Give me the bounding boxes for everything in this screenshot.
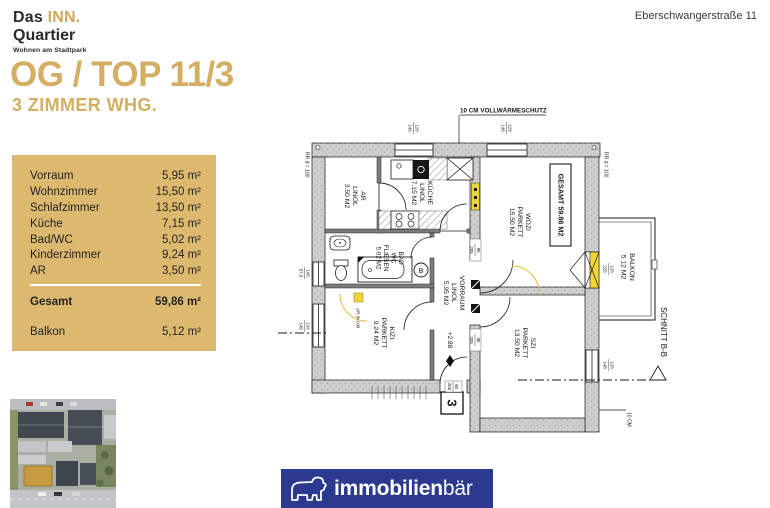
svg-text:LINOL: LINOL <box>351 186 358 206</box>
gesamt-box-label: GESAMT 59.86 M2 <box>550 164 571 246</box>
rr-marker-left <box>316 146 320 150</box>
svg-text:145: 145 <box>306 269 311 277</box>
svg-text:AR: AR <box>359 191 366 201</box>
room-label-kizi: KIZI PARKETT 9.24 M2 <box>372 318 395 349</box>
room-label-vorraum: VORRAUM LINOL 5.95 M2 <box>442 276 465 311</box>
table-divider <box>30 284 201 286</box>
room-area: 5,95 m² <box>162 170 201 182</box>
room-area: 7,15 m² <box>162 218 201 230</box>
logo-line1: Das INN. <box>13 10 87 26</box>
dim-door-upper: 90 205 <box>469 239 481 261</box>
balcony-door <box>570 252 599 288</box>
svg-text:9.24 M2: 9.24 M2 <box>372 321 379 346</box>
shaft-strip <box>472 183 480 210</box>
room-label-balkon: BALKON 5.12 M2 <box>620 253 636 281</box>
logo-tagline: Wohnen am Stadtpark <box>13 48 87 55</box>
page-title: OG / TOP 11/3 <box>10 55 234 95</box>
room-label-wozi: WOZI PARKETT 15.50 M2 <box>508 207 531 238</box>
toilet <box>334 260 348 281</box>
svg-text:205: 205 <box>447 383 452 391</box>
table-row: Schlafzimmer13,50 m² <box>30 200 201 216</box>
room-area: 3,50 m² <box>162 265 201 277</box>
svg-text:5.95 M2: 5.95 M2 <box>442 281 449 306</box>
svg-text:7.15 M2: 7.15 M2 <box>410 181 417 206</box>
svg-text:148: 148 <box>603 361 608 369</box>
dim-balcony-door: 128 225 <box>603 263 615 275</box>
room-label-kueche: KÜCHE LINOL 7.15 M2 <box>410 181 434 206</box>
svg-text:3.50 M2: 3.50 M2 <box>343 184 350 209</box>
rr-label-right: RR d = 100 <box>603 152 609 178</box>
svg-text:PARKETT: PARKETT <box>380 318 387 349</box>
room-label: AR <box>30 265 46 277</box>
agency-logo-text: immobilienbär <box>334 477 473 501</box>
dim-entrance-door: 80 205 <box>445 381 462 392</box>
svg-text:13.50 M2: 13.50 M2 <box>513 329 520 358</box>
dim-top-window-left: 128 148 <box>408 122 420 134</box>
svg-text:GESAMT 59.86 M2: GESAMT 59.86 M2 <box>557 174 566 237</box>
svg-text:145: 145 <box>299 322 304 330</box>
svg-text:90: 90 <box>476 338 481 343</box>
floorplan-datasheet-page: { "colors":{"gold":"#d4ae63","gold_box":… <box>0 0 770 508</box>
dim-door-lower: 90 205 <box>469 329 481 351</box>
aerial-photo <box>10 399 116 508</box>
svg-text:128: 128 <box>610 361 615 369</box>
logo-inn: INN. <box>48 9 81 26</box>
total-label: Gesamt <box>30 296 72 308</box>
svg-text:RR d = 100: RR d = 100 <box>603 152 609 178</box>
svg-text:5.02 M2: 5.02 M2 <box>375 246 382 270</box>
dim-wall-left-upper: 145 57,5 <box>299 267 311 279</box>
room-label: Bad/WC <box>30 234 73 246</box>
svg-text:205: 205 <box>469 336 474 344</box>
room-label: Wohnzimmer <box>30 186 98 198</box>
room-label-szi: SZI PARKETT 13.50 M2 <box>513 328 536 359</box>
floor-plan-drawing: B AR d=100 <box>278 100 678 435</box>
svg-text:KÜCHE: KÜCHE <box>426 181 434 205</box>
dim-szi-window: 128 148 <box>603 359 615 371</box>
kitchen-counter-hatch <box>428 158 447 180</box>
logo-das: Das <box>13 9 48 26</box>
svg-text:90: 90 <box>476 248 481 253</box>
room-label: Küche <box>30 218 63 230</box>
table-balkon-row: Balkon5,12 m² <box>30 324 201 340</box>
svg-text:WOZI: WOZI <box>524 213 531 231</box>
svg-text:KIZI: KIZI <box>388 327 395 340</box>
kitchen-sink-unit <box>391 160 429 179</box>
brand-bold: immobilien <box>334 477 443 500</box>
balkon-area: 5,12 m² <box>162 326 201 338</box>
bear-icon <box>287 473 331 505</box>
duct-label: AR d=100 <box>356 308 361 329</box>
svg-text:SZI: SZI <box>529 338 536 349</box>
table-row: Vorraum5,95 m² <box>30 168 201 184</box>
svg-text:57,5: 57,5 <box>299 269 304 278</box>
svg-text:205: 205 <box>469 246 474 254</box>
room-area: 15,50 m² <box>156 186 201 198</box>
svg-text:80: 80 <box>454 384 459 389</box>
agency-logo-bar: immobilienbär <box>281 469 493 508</box>
svg-text:148: 148 <box>501 124 506 132</box>
electrical-symbols <box>471 280 480 313</box>
svg-text:VORRAUM: VORRAUM <box>458 276 465 311</box>
svg-text:128: 128 <box>415 124 420 132</box>
shaft-box <box>447 158 473 180</box>
table-row: Bad/WC5,02 m² <box>30 232 201 248</box>
duct-marker: AR d=100 <box>340 293 367 329</box>
svg-text:FLIESEN: FLIESEN <box>382 245 389 272</box>
table-row: Kinderzimmer9,24 m² <box>30 247 201 263</box>
room-label: Schlafzimmer <box>30 202 100 214</box>
svg-text:148: 148 <box>408 124 413 132</box>
svg-text:128: 128 <box>610 265 615 273</box>
table-row: Küche7,15 m² <box>30 216 201 232</box>
svg-text:WC: WC <box>390 253 397 264</box>
svg-text:225: 225 <box>603 265 608 273</box>
page-subtitle: 3 ZIMMER WHG. <box>12 95 157 116</box>
svg-text:PARKETT: PARKETT <box>516 207 523 238</box>
balkon-label: Balkon <box>30 326 65 338</box>
svg-text:15.50 M2: 15.50 M2 <box>508 208 515 237</box>
logo-line2: Quartier <box>13 28 87 44</box>
room-area: 9,24 m² <box>162 249 201 261</box>
area-table: Vorraum5,95 m² Wohnzimmer15,50 m² Schlaf… <box>12 155 216 351</box>
developer-logo: Das INN. Quartier Wohnen am Stadtpark <box>13 10 87 55</box>
svg-text:RR d = 100: RR d = 100 <box>304 152 310 178</box>
level-label: +2.88 <box>446 332 453 349</box>
boiler: B <box>414 263 428 277</box>
table-row: AR3,50 m² <box>30 263 201 279</box>
svg-text:3: 3 <box>445 399 460 406</box>
rr-marker-right <box>592 146 596 150</box>
total-area: 59,86 m² <box>155 296 201 308</box>
table-row: Wohnzimmer15,50 m² <box>30 184 201 200</box>
svg-text:126: 126 <box>306 322 311 330</box>
svg-text:128: 128 <box>508 124 513 132</box>
insulation-note-bottom: 10 CM <box>599 410 632 427</box>
svg-text:+2.88: +2.88 <box>446 332 453 349</box>
room-area: 13,50 m² <box>156 202 201 214</box>
svg-text:BALKON: BALKON <box>628 253 635 281</box>
svg-text:PARKETT: PARKETT <box>521 328 528 359</box>
svg-text:LINOL: LINOL <box>450 283 457 303</box>
room-label-ar: AR LINOL 3.50 M2 <box>343 184 366 209</box>
unit-number-box: 3 <box>441 392 463 414</box>
section-label: SCHNITT B-B <box>659 307 668 357</box>
svg-text:5.12 M2: 5.12 M2 <box>620 255 627 280</box>
rr-label-left: RR d = 100 <box>304 152 310 178</box>
brand-light: bär <box>443 477 473 500</box>
room-area: 5,02 m² <box>162 234 201 246</box>
table-total-row: Gesamt59,86 m² <box>30 293 201 311</box>
boiler-label: B <box>419 268 424 275</box>
dim-wall-left-lower: 126 145 <box>299 320 311 332</box>
project-address: Eberschwangerstraße 11 <box>635 10 757 22</box>
dim-top-window-right: 128 148 <box>501 122 513 134</box>
svg-text:BAD: BAD <box>397 251 404 265</box>
svg-text:10 CM VOLLWÄRMESCHUTZ: 10 CM VOLLWÄRMESCHUTZ <box>460 107 547 115</box>
svg-text:LINOL: LINOL <box>418 183 425 203</box>
svg-text:10 CM: 10 CM <box>626 412 632 427</box>
svg-text:SCHNITT B-B: SCHNITT B-B <box>659 307 668 357</box>
washbasin <box>330 236 350 250</box>
kitchen-stove <box>379 211 447 229</box>
room-label: Kinderzimmer <box>30 249 101 261</box>
room-label: Vorraum <box>30 170 73 182</box>
